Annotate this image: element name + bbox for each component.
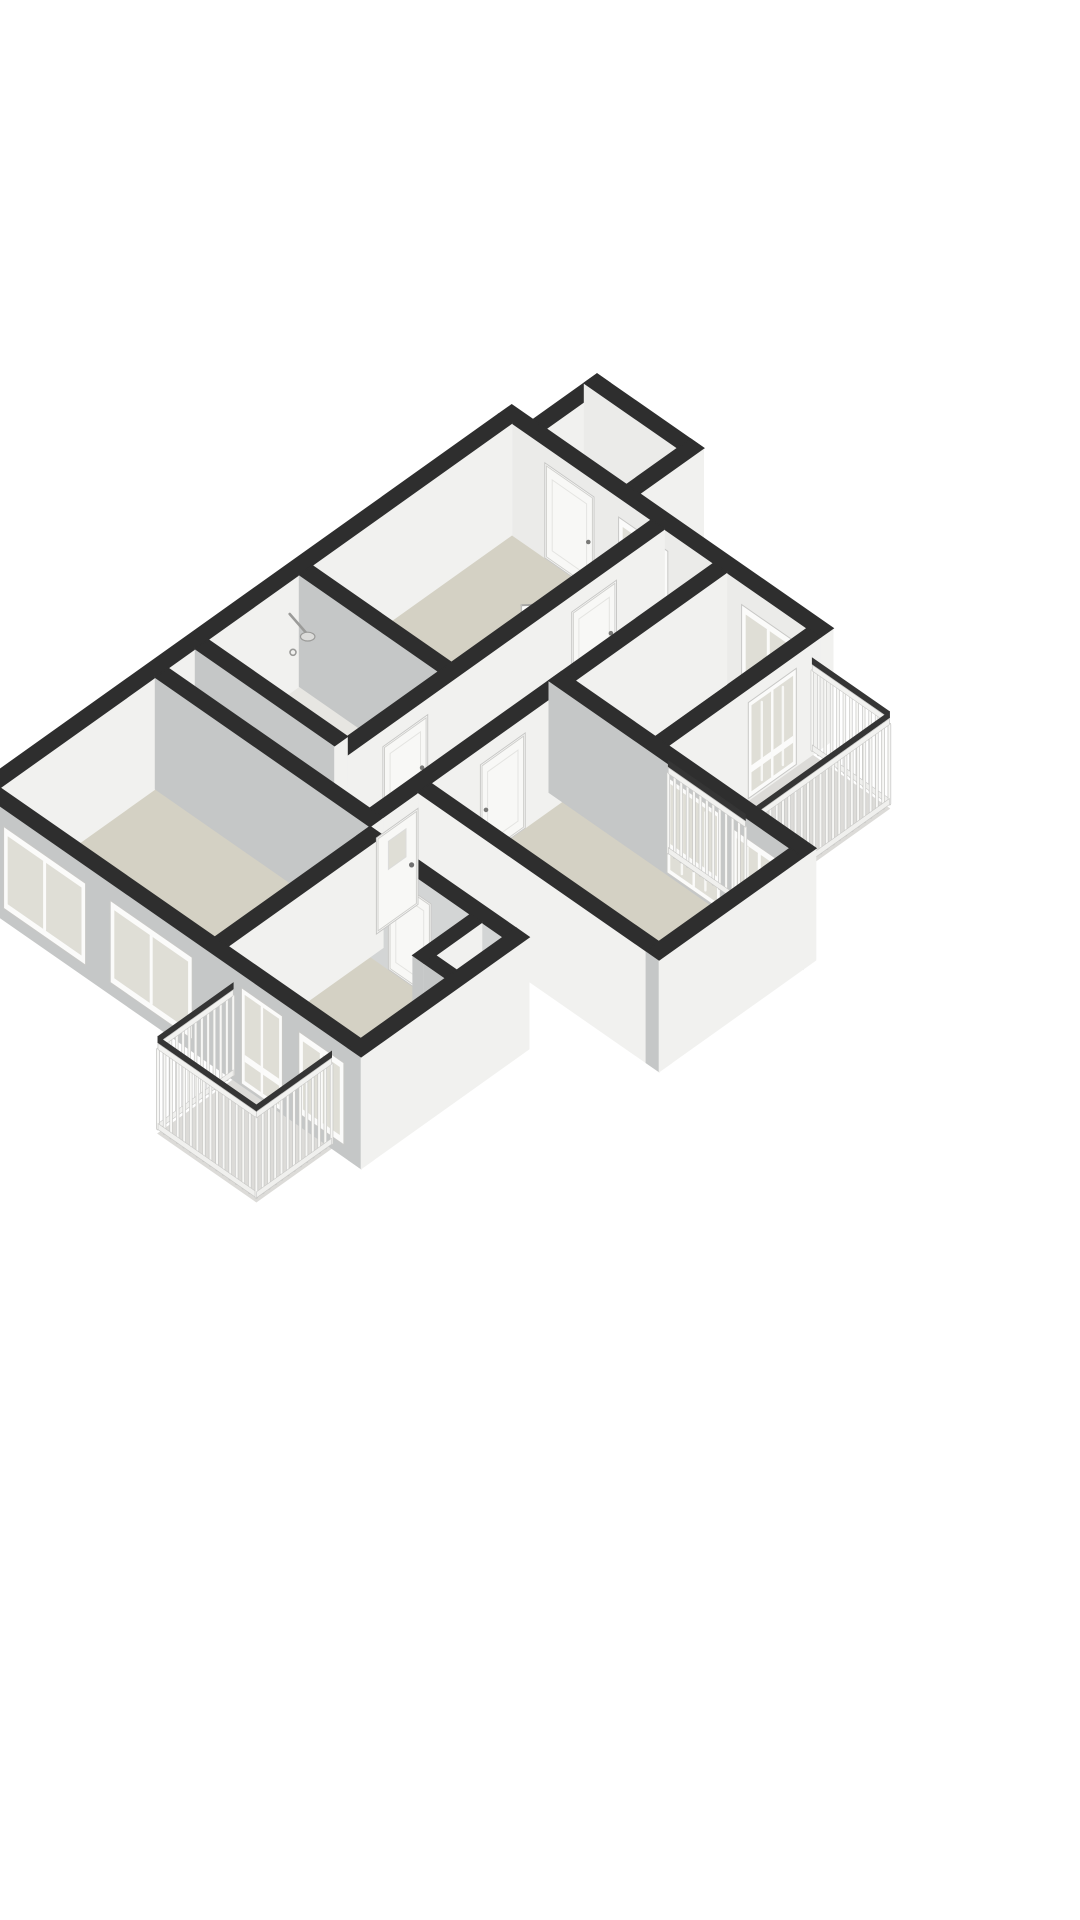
floor-plan-canvas: [0, 0, 1080, 1920]
floor-plan-3d-scene: [0, 0, 1080, 1920]
